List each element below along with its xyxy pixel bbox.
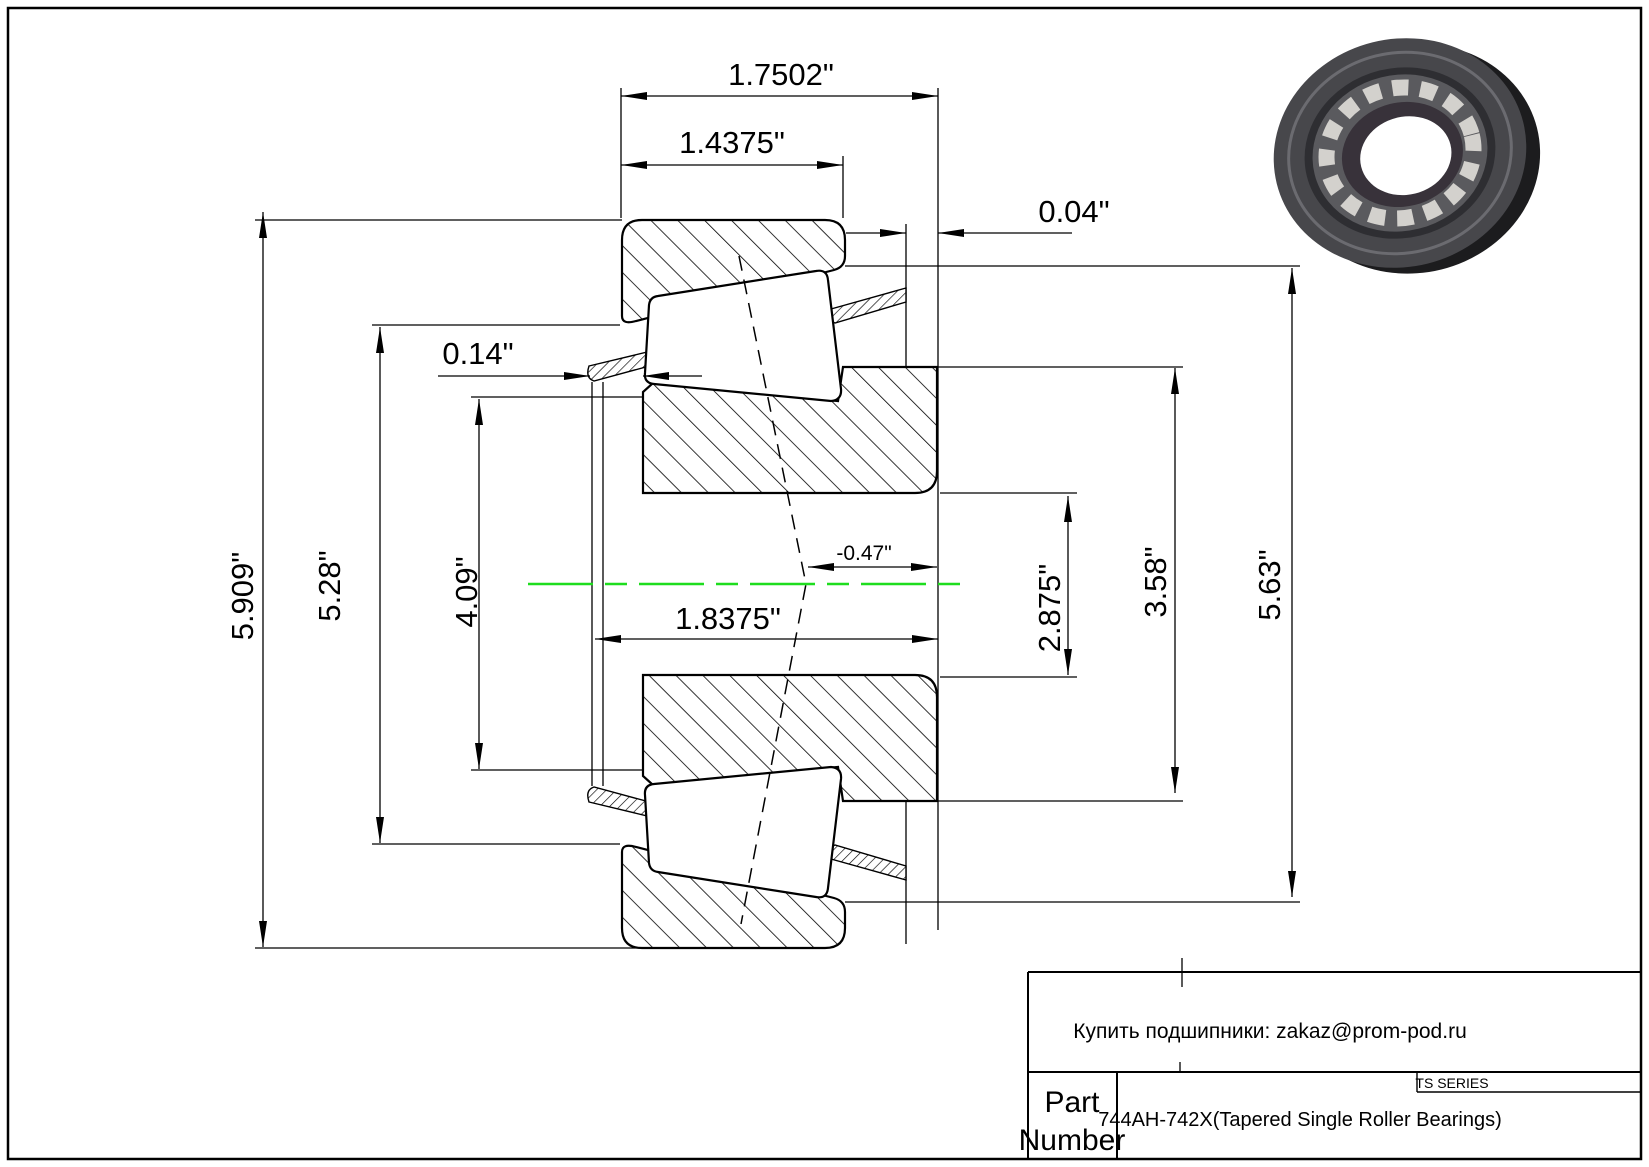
dim-backface-rib: 4.09" (449, 556, 484, 627)
bearing-photo (1249, 9, 1564, 303)
cage-strip-upper-right (831, 288, 907, 323)
part-label-line1: Part (1044, 1086, 1100, 1119)
dim-outer-diameter: 5.909" (225, 552, 260, 641)
cage-strip-lower-right (831, 845, 907, 880)
dim-bore: 2.875" (1032, 564, 1067, 653)
bearing-drawing: 1.7502" 1.4375" 0.04" 0.14" 1.8375" -0.4… (0, 0, 1649, 1167)
dim-total-width: 1.7502" (728, 57, 834, 92)
dim-front-rib: 3.58" (1138, 546, 1173, 617)
dim-effective-center: -0.47" (836, 542, 891, 565)
dim-cup-width: 1.4375" (679, 125, 785, 160)
part-number: 744AH-742X(Tapered Single Roller Bearing… (1098, 1109, 1502, 1131)
drawing-page: 1.7502" 1.4375" 0.04" 0.14" 1.8375" -0.4… (0, 0, 1649, 1167)
title-block: Купить подшипники: zakaz@prom-pod.ru TS … (1019, 1020, 1502, 1157)
series-label: TS SERIES (1415, 1075, 1488, 1091)
dim-left-shoulder: 5.28" (312, 550, 347, 621)
dim-cup-front: 5.63" (1252, 549, 1287, 620)
order-note: Купить подшипники: zakaz@prom-pod.ru (1073, 1020, 1467, 1043)
dim-right-standout: 0.04" (1038, 194, 1109, 229)
dim-cone-width: 1.8375" (675, 601, 781, 636)
dim-left-standout: 0.14" (442, 336, 513, 371)
